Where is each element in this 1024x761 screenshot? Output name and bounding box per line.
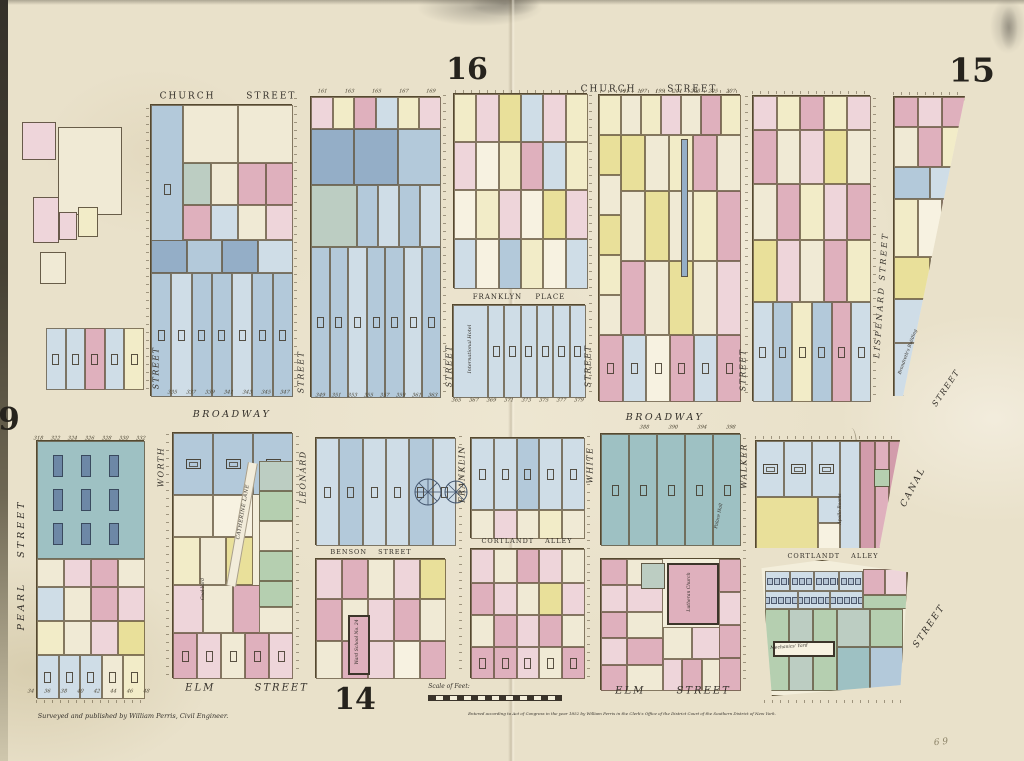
parcel (773, 302, 793, 402)
parcel (173, 433, 213, 495)
parcel (222, 240, 258, 273)
parcel (918, 127, 942, 167)
parcel (756, 441, 784, 497)
window-glyph (558, 346, 565, 357)
parcel (553, 305, 569, 398)
parcel (494, 615, 517, 647)
house-number: 324 (67, 436, 77, 441)
parcel (454, 142, 476, 190)
parcel (601, 559, 627, 585)
parcel-strip (37, 441, 145, 559)
label-canal-street-upper: STREET (931, 368, 962, 408)
window-glyph (198, 330, 205, 341)
parcel-strip (311, 97, 441, 129)
parcel (753, 96, 777, 130)
parcel-strip (621, 95, 741, 135)
window-glyph (524, 658, 531, 669)
parcel-strip (151, 273, 293, 397)
parcel (316, 438, 339, 546)
parcel (173, 495, 213, 537)
parcel (777, 184, 801, 240)
label-elm-street-left: ELM STREET (185, 682, 309, 692)
window-glyph (524, 469, 531, 480)
parcel-strip (765, 571, 863, 591)
parcel (354, 97, 376, 129)
house-number: 38 (60, 689, 67, 694)
parcel (840, 441, 860, 549)
parcel-strip (894, 257, 966, 299)
parcel-strip (311, 129, 441, 185)
dimension-ticks (294, 98, 297, 394)
parcel (942, 127, 966, 167)
parcel-strip (663, 627, 721, 659)
city-block-franklin-upper (453, 93, 587, 288)
parcel (376, 97, 398, 129)
parcel (419, 97, 441, 129)
parcel (521, 190, 543, 239)
parcel (269, 633, 293, 679)
parcel (476, 94, 498, 142)
parcel (792, 302, 812, 402)
window-glyph (702, 363, 709, 374)
parcel (601, 434, 629, 546)
dimension-ticks (146, 108, 149, 394)
parcel (471, 647, 494, 679)
parcel (333, 97, 355, 129)
house-number: 373 (521, 398, 531, 403)
label-street-v2: STREET (297, 351, 305, 394)
parcel (316, 559, 342, 599)
parcel (942, 199, 966, 257)
parcel (311, 129, 354, 185)
window-glyph (640, 485, 647, 496)
parcel (40, 252, 66, 284)
parcel (566, 94, 588, 142)
parcel (266, 163, 294, 205)
dimension-ticks (455, 90, 585, 93)
house-number: 169 (426, 89, 436, 94)
parcel (316, 641, 342, 679)
parcel-strip (311, 247, 441, 398)
parcel-strip (894, 299, 966, 343)
window-glyph (254, 651, 261, 662)
parcel (91, 559, 118, 587)
parcel (599, 335, 623, 402)
house-number-strip: 365367369371373375377379 (451, 398, 584, 403)
city-block-pearl-worth (36, 440, 144, 698)
parcel (259, 491, 293, 521)
parcel (765, 591, 798, 609)
parcel (777, 96, 801, 130)
parcel (621, 95, 641, 135)
parcel (621, 191, 645, 261)
label-lutheran-church: Lutheran Church (687, 572, 692, 611)
window-glyph (218, 330, 225, 341)
label-church-street-left: CHURCH STREET (160, 92, 297, 101)
city-block-nw-partial (14, 118, 146, 394)
city-block-franklin-white-lower (470, 548, 584, 678)
landmark-building (667, 563, 719, 625)
parcel (863, 569, 885, 595)
sheet-left-edge (0, 0, 8, 761)
dimension-ticks (36, 700, 144, 703)
parcel-strip (471, 647, 585, 679)
parcel (78, 207, 98, 237)
parcel (537, 305, 553, 398)
window-glyph (612, 485, 619, 496)
window-glyph (655, 363, 662, 374)
parcel (812, 441, 840, 497)
parcel-strip (454, 142, 588, 190)
window-glyph (570, 469, 577, 480)
parcel (717, 261, 741, 335)
parcel (197, 633, 221, 679)
parcel (641, 95, 661, 135)
parcel (839, 571, 864, 591)
parcel (66, 328, 86, 390)
parcel (488, 305, 504, 398)
parcel (259, 581, 293, 607)
house-number: 34 (27, 689, 34, 694)
parcel (348, 247, 367, 398)
house-number: 318 (33, 436, 43, 441)
parcel-strip (863, 569, 907, 595)
label-plate-14: 14 (334, 684, 376, 714)
parcel (499, 239, 521, 289)
parcel (368, 599, 394, 641)
dimension-ticks (459, 436, 462, 676)
parcel-strip (471, 549, 585, 583)
parcel-strip (183, 205, 293, 240)
parcel-strip (753, 96, 871, 130)
parcel (471, 438, 494, 510)
parcel (645, 191, 669, 261)
parcel (37, 621, 64, 655)
parcel (930, 299, 966, 343)
parcel (259, 551, 293, 581)
parcel (454, 94, 476, 142)
parcel (824, 96, 848, 130)
parcel (476, 190, 498, 239)
parcel (171, 273, 191, 397)
window-glyph (109, 672, 116, 683)
parcel (693, 191, 717, 261)
label-broadway-left: BROADWAY (193, 409, 271, 419)
parcel-strip (311, 185, 357, 247)
window-glyph (678, 363, 685, 374)
parcel (800, 96, 824, 130)
parcel-strip (151, 240, 293, 273)
label-worth: WORTH (157, 447, 165, 487)
parcel (471, 615, 494, 647)
parcel (539, 510, 562, 539)
window-glyph (818, 347, 825, 358)
parcel (394, 599, 420, 641)
parcel (187, 240, 223, 273)
parcel (875, 441, 890, 549)
window-glyph (131, 672, 138, 683)
parcel-strip (894, 199, 966, 257)
window-glyph (428, 317, 435, 328)
window-glyph (574, 346, 581, 357)
window-glyph (799, 347, 806, 358)
parcel (685, 434, 713, 546)
dimension-ticks (873, 98, 876, 396)
parcel (386, 438, 409, 546)
parcel (798, 591, 831, 609)
parcel (183, 163, 211, 205)
house-number: 42 (93, 689, 100, 694)
parcel (645, 135, 669, 191)
parcel (367, 247, 386, 398)
window-glyph (502, 658, 509, 669)
parcel (221, 633, 245, 679)
parcel (476, 239, 498, 289)
label-surveyor-line: Surveyed and published by William Perris… (38, 713, 229, 720)
parcel (847, 130, 871, 184)
dimension-ticks (752, 91, 868, 94)
parcel (599, 295, 621, 335)
parcel (118, 587, 145, 621)
parcel (499, 190, 521, 239)
parcel (259, 461, 293, 491)
parcel (192, 273, 212, 397)
parcel (814, 571, 839, 591)
parcel (398, 129, 441, 185)
parcel (357, 185, 378, 247)
parcel (847, 240, 871, 302)
parcel-strip (753, 130, 871, 184)
parcel-strip (837, 647, 903, 691)
parcel (693, 261, 717, 335)
parcel (824, 240, 848, 302)
window-glyph (759, 347, 766, 358)
parcel (623, 335, 647, 402)
window-glyph (509, 346, 516, 357)
window-row-glyph (798, 597, 831, 604)
house-number: 361 (412, 393, 422, 398)
parcel-strip (756, 441, 840, 497)
window-glyph (182, 651, 189, 662)
label-broadway-right: BROADWAY (626, 412, 704, 422)
parcel (212, 273, 232, 397)
roof-slot-glyph (109, 523, 119, 545)
label-copyright-line: Entered according to Act of Congress in … (468, 712, 776, 716)
parcel (211, 163, 239, 205)
parcel (566, 239, 588, 289)
parcel (37, 587, 64, 621)
city-block-franklin-white-upper (470, 437, 584, 538)
house-number: 379 (574, 398, 584, 403)
parcel (420, 185, 441, 247)
parcel (837, 609, 870, 647)
parcel (151, 240, 187, 273)
parcel (543, 190, 565, 239)
parcel (918, 199, 942, 257)
roof-slot-glyph (53, 489, 63, 511)
parcel (91, 587, 118, 621)
parcel (494, 510, 517, 539)
parcel (539, 615, 562, 647)
parcel (661, 95, 681, 135)
parcel (398, 97, 420, 129)
parcel (627, 638, 663, 664)
parcel (621, 261, 645, 335)
house-number: 359 (396, 393, 406, 398)
house-number: 337 (186, 390, 196, 395)
parcel (273, 273, 293, 397)
parcel (918, 97, 942, 127)
label-street-v3: STREET (445, 345, 453, 388)
scale-bar (428, 695, 562, 701)
parcel (517, 647, 540, 679)
parcel (454, 190, 476, 239)
city-block-white-walker-broadway (600, 433, 740, 545)
house-number: 163 (344, 89, 354, 94)
parcel (860, 441, 875, 549)
parcel (543, 94, 565, 142)
paper-stain (1000, 6, 1018, 50)
parcel (627, 585, 663, 611)
house-number: 349 (315, 393, 325, 398)
house-number-strip: 388390394398 (639, 425, 736, 430)
parcel-strip (894, 127, 966, 167)
dimension-ticks (443, 95, 446, 395)
parcel (85, 328, 105, 390)
city-block-walker-canal-upper (755, 440, 903, 548)
label-plate-9: 9 (0, 404, 20, 435)
window-glyph (66, 672, 73, 683)
parcel (183, 205, 211, 240)
parcel (942, 97, 966, 127)
parcel-strip (753, 302, 871, 402)
window-glyph (668, 485, 675, 496)
roof-slot-glyph (53, 455, 63, 477)
window-glyph (838, 347, 845, 358)
parcel (753, 130, 777, 184)
table-glyph (763, 464, 778, 474)
parcel (692, 627, 721, 659)
parcel (394, 559, 420, 599)
house-number: 40 (77, 689, 84, 694)
window-glyph (72, 354, 79, 365)
window-glyph (410, 317, 417, 328)
parcel (203, 585, 233, 633)
parcel (894, 199, 918, 257)
parcel (354, 129, 397, 185)
window-glyph (354, 317, 361, 328)
label-plate-16: 16 (446, 54, 488, 84)
parcel (851, 302, 871, 402)
parcel (721, 95, 741, 135)
window-glyph (230, 651, 237, 662)
parcel (521, 142, 543, 190)
label-leonard: LEONARD (299, 450, 307, 503)
house-number: 371 (504, 398, 514, 403)
window-row-glyph (765, 578, 790, 585)
parcel (22, 122, 56, 160)
label-cortlandt-alley-right: CORTLANDT ALLEY (787, 553, 878, 560)
house-number: 367 (469, 398, 479, 403)
parcel-strip (753, 184, 871, 240)
parcel-strip (599, 335, 741, 402)
house-number: 351 (331, 393, 341, 398)
parcel (316, 599, 342, 641)
parcel (713, 434, 741, 546)
parcel (870, 609, 903, 647)
city-block-worth-leonard-north (310, 96, 440, 397)
window-glyph (525, 346, 532, 357)
parcel-strip (488, 305, 586, 398)
parcel (777, 130, 801, 184)
window-glyph (335, 317, 342, 328)
parcel (494, 583, 517, 615)
house-number: 44 (110, 689, 117, 694)
parcel (930, 167, 966, 199)
parcel (539, 549, 562, 583)
house-number: 339 (205, 390, 215, 395)
parcel (91, 621, 118, 655)
parcel (777, 240, 801, 302)
parcel (719, 592, 741, 625)
parcel (499, 94, 521, 142)
parcel (539, 583, 562, 615)
window-glyph (479, 658, 486, 669)
parcel (259, 521, 293, 551)
label-pencil-mark: 6 9 (933, 737, 948, 747)
parcel-strip (259, 581, 293, 633)
parcel (368, 641, 394, 679)
city-block-benson-elm (315, 558, 445, 678)
house-number: 343 (242, 390, 252, 395)
dimension-ticks (589, 95, 592, 395)
parcel (258, 240, 294, 273)
dimension-ticks (166, 434, 169, 676)
parcel (471, 510, 494, 539)
window-glyph (164, 184, 171, 195)
parcel (183, 105, 238, 163)
window-glyph (371, 487, 378, 498)
table-glyph (226, 459, 241, 469)
label-elm-street-right: ELM STREET (615, 685, 731, 695)
parcel-strip (601, 434, 741, 546)
city-block-walker-canal-lower (760, 560, 908, 696)
parcel-strip (601, 559, 627, 691)
parcel-strip (860, 441, 904, 549)
parcel (894, 97, 918, 127)
table-glyph (791, 464, 806, 474)
parcel (562, 583, 585, 615)
parcel-strip (173, 633, 293, 679)
house-number: 330 (119, 436, 129, 441)
house-number-strip: 161163165167169 (317, 89, 436, 94)
map-sheet: 1615914CHURCH STREETCHURCH STREETBROADWA… (0, 0, 1024, 761)
house-number: 398 (726, 425, 736, 430)
parcel (494, 647, 517, 679)
parcel (599, 135, 621, 175)
parcel (601, 612, 627, 638)
house-number: 46 (126, 689, 133, 694)
parcel (539, 647, 562, 679)
parcel (670, 335, 694, 402)
window-glyph (279, 330, 286, 341)
window-glyph (570, 658, 577, 669)
parcel (173, 537, 200, 585)
house-number: 388 (639, 425, 649, 430)
house-number-strip: 3436384042444648 (27, 689, 150, 694)
house-number: 161 (317, 89, 327, 94)
parcel (812, 302, 832, 402)
